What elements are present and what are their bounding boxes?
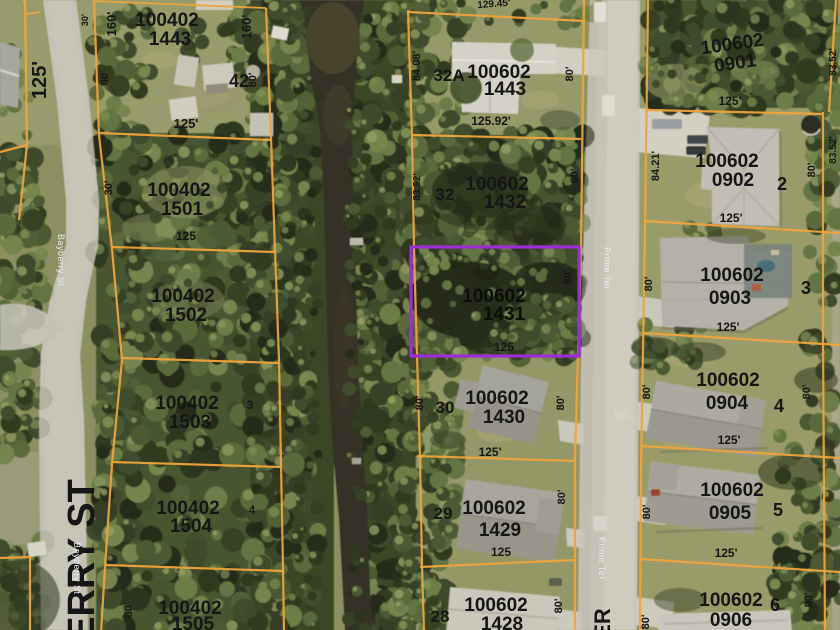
svg-text:30: 30	[436, 398, 455, 417]
svg-text:1502: 1502	[165, 305, 207, 326]
svg-text:1503: 1503	[169, 412, 211, 433]
svg-text:1431: 1431	[483, 304, 526, 325]
svg-text:6: 6	[770, 595, 780, 615]
svg-text:32: 32	[436, 185, 455, 204]
svg-text:1504: 1504	[170, 516, 213, 537]
svg-text:83.52': 83.52'	[828, 48, 839, 75]
svg-text:80': 80'	[564, 66, 576, 81]
svg-text:125.92': 125.92'	[471, 114, 511, 128]
svg-text:100602: 100602	[699, 590, 762, 611]
svg-text:80': 80'	[556, 489, 568, 504]
svg-text:125': 125'	[479, 445, 502, 459]
svg-text:0904: 0904	[706, 393, 749, 414]
svg-text:Bayberry St: Bayberry St	[56, 234, 66, 287]
svg-text:160': 160'	[104, 12, 119, 37]
svg-text:100602: 100602	[700, 265, 763, 286]
svg-text:84.21': 84.21'	[650, 151, 662, 182]
svg-text:100602: 100602	[465, 388, 528, 409]
svg-text:4: 4	[774, 396, 784, 416]
svg-text:28: 28	[431, 607, 450, 626]
svg-text:2: 2	[777, 174, 787, 194]
svg-text:160': 160'	[239, 15, 254, 40]
svg-text:125: 125	[176, 229, 196, 243]
svg-text:100602: 100602	[696, 370, 759, 391]
svg-text:100402: 100402	[151, 286, 214, 307]
svg-text:125: 125	[494, 340, 514, 354]
svg-text:1505: 1505	[172, 614, 215, 630]
svg-text:80': 80'	[555, 395, 567, 410]
svg-text:0903: 0903	[709, 288, 751, 309]
svg-text:30': 30'	[80, 14, 90, 26]
svg-text:1443: 1443	[484, 79, 526, 100]
svg-text:80': 80'	[414, 395, 426, 410]
svg-text:80': 80'	[99, 70, 111, 85]
svg-text:29: 29	[434, 504, 453, 523]
svg-text:4: 4	[249, 503, 256, 517]
svg-text:100602: 100602	[695, 151, 758, 172]
svg-text:83.52': 83.52'	[828, 136, 839, 163]
svg-text:Prime Ter: Prime Ter	[602, 247, 612, 290]
svg-text:80': 80'	[640, 614, 652, 629]
svg-text:100602: 100602	[700, 480, 763, 501]
svg-text:80': 80'	[641, 504, 653, 519]
svg-text:80': 80'	[562, 269, 574, 284]
svg-text:0902: 0902	[712, 170, 754, 191]
svg-text:32A: 32A	[433, 66, 464, 85]
svg-text:PRIME TER: PRIME TER	[590, 608, 615, 630]
svg-text:42: 42	[229, 71, 249, 91]
svg-text:80': 80'	[803, 592, 815, 607]
svg-text:100602: 100602	[462, 498, 525, 519]
svg-text:100602: 100602	[464, 595, 527, 616]
svg-text:80': 80'	[643, 276, 655, 291]
svg-text:Prime Ter: Prime Ter	[597, 537, 607, 580]
svg-text:125': 125'	[718, 433, 741, 447]
svg-text:80': 80'	[553, 598, 565, 613]
svg-text:125': 125'	[717, 320, 740, 334]
svg-text:80': 80'	[806, 162, 818, 177]
svg-text:125': 125'	[719, 94, 742, 108]
svg-text:3: 3	[247, 398, 254, 412]
svg-text:1432: 1432	[484, 192, 526, 213]
svg-text:100402: 100402	[155, 393, 218, 414]
svg-text:80': 80'	[569, 168, 581, 183]
svg-text:125': 125'	[29, 61, 51, 99]
svg-text:1428: 1428	[481, 614, 523, 630]
svg-text:125': 125'	[720, 211, 743, 225]
svg-text:3: 3	[801, 278, 811, 298]
svg-text:83.52': 83.52'	[412, 173, 423, 200]
svg-text:1443: 1443	[149, 29, 191, 50]
svg-text:1429: 1429	[479, 520, 521, 541]
svg-text:125: 125	[491, 545, 511, 559]
svg-text:5: 5	[773, 500, 783, 520]
svg-text:0906: 0906	[710, 610, 752, 630]
svg-text:125': 125'	[174, 116, 199, 131]
svg-text:125': 125'	[715, 546, 738, 560]
svg-text:1430: 1430	[483, 407, 525, 428]
svg-text:30': 30'	[103, 180, 115, 195]
svg-text:84.08': 84.08'	[411, 51, 423, 82]
svg-text:0905: 0905	[709, 503, 752, 524]
svg-text:80': 80'	[123, 602, 135, 617]
svg-text:80': 80'	[641, 384, 653, 399]
svg-text:80': 80'	[801, 384, 813, 399]
svg-text:Bayberry St: Bayberry St	[72, 542, 82, 595]
svg-text:100402: 100402	[147, 180, 210, 201]
svg-text:1501: 1501	[161, 199, 204, 220]
svg-text:100402: 100402	[135, 10, 198, 31]
